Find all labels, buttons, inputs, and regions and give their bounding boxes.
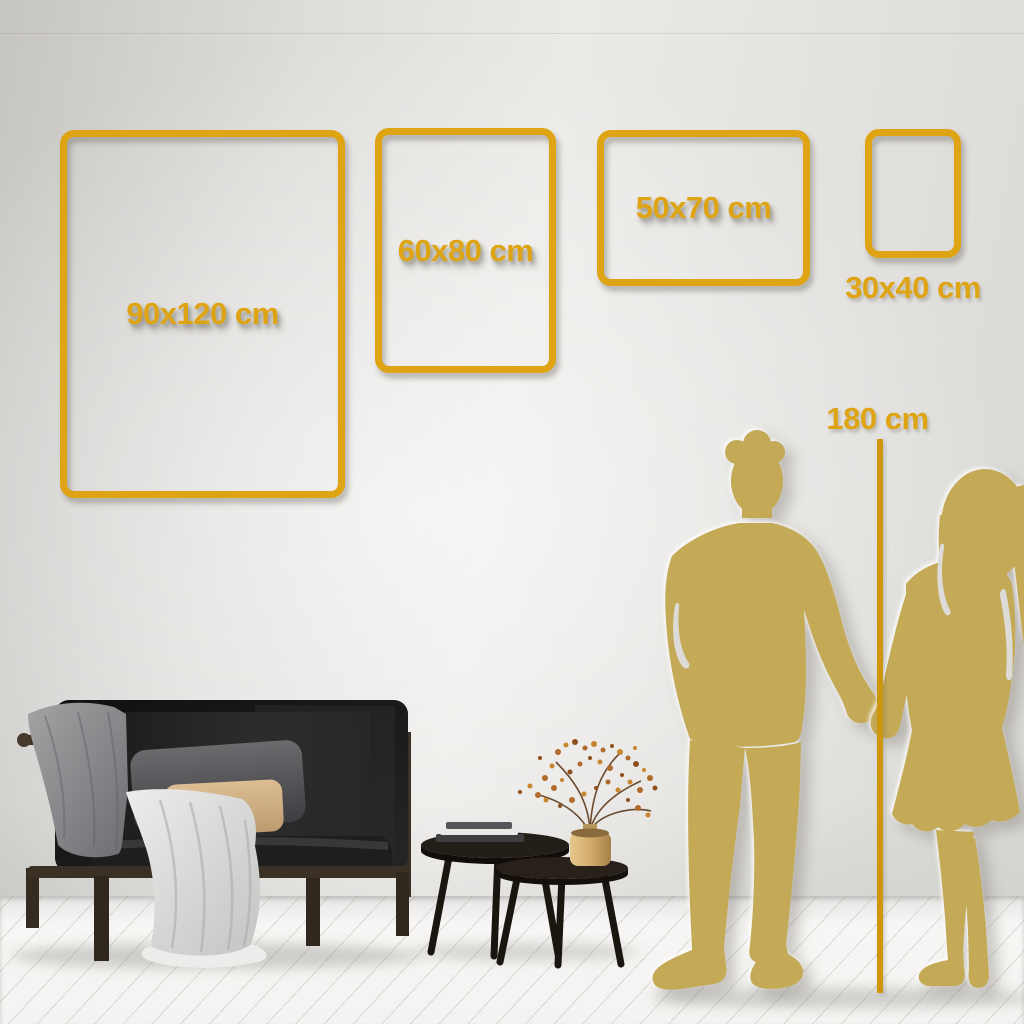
- blanket-icon: [28, 703, 128, 858]
- height-marker-label: 180 cm: [790, 401, 965, 437]
- size-frame-90x120: 90x120 cm: [60, 130, 345, 498]
- size-label-90x120: 90x120 cm: [126, 296, 278, 332]
- woman-silhouette-icon: [871, 469, 1024, 988]
- size-frame-60x80: 60x80 cm: [375, 128, 556, 373]
- dried-branch-icon: [518, 739, 658, 830]
- poster-size-guide: 90x120 cm 60x80 cm 50x70 cm 30x40 cm 180…: [0, 0, 1024, 1024]
- size-frame-50x70: 50x70 cm: [597, 130, 810, 286]
- height-measure-line: [877, 439, 883, 993]
- books-icon: [436, 822, 524, 842]
- size-label-60x80: 60x80 cm: [398, 233, 534, 269]
- size-frame-30x40: [865, 129, 961, 258]
- nesting-tables-icon: [421, 739, 658, 965]
- sofa-icon: [17, 700, 411, 968]
- brass-vase-icon: [570, 824, 611, 866]
- size-label-50x70: 50x70 cm: [636, 190, 772, 226]
- man-silhouette-icon: [653, 430, 879, 990]
- size-label-30x40: 30x40 cm: [833, 270, 993, 306]
